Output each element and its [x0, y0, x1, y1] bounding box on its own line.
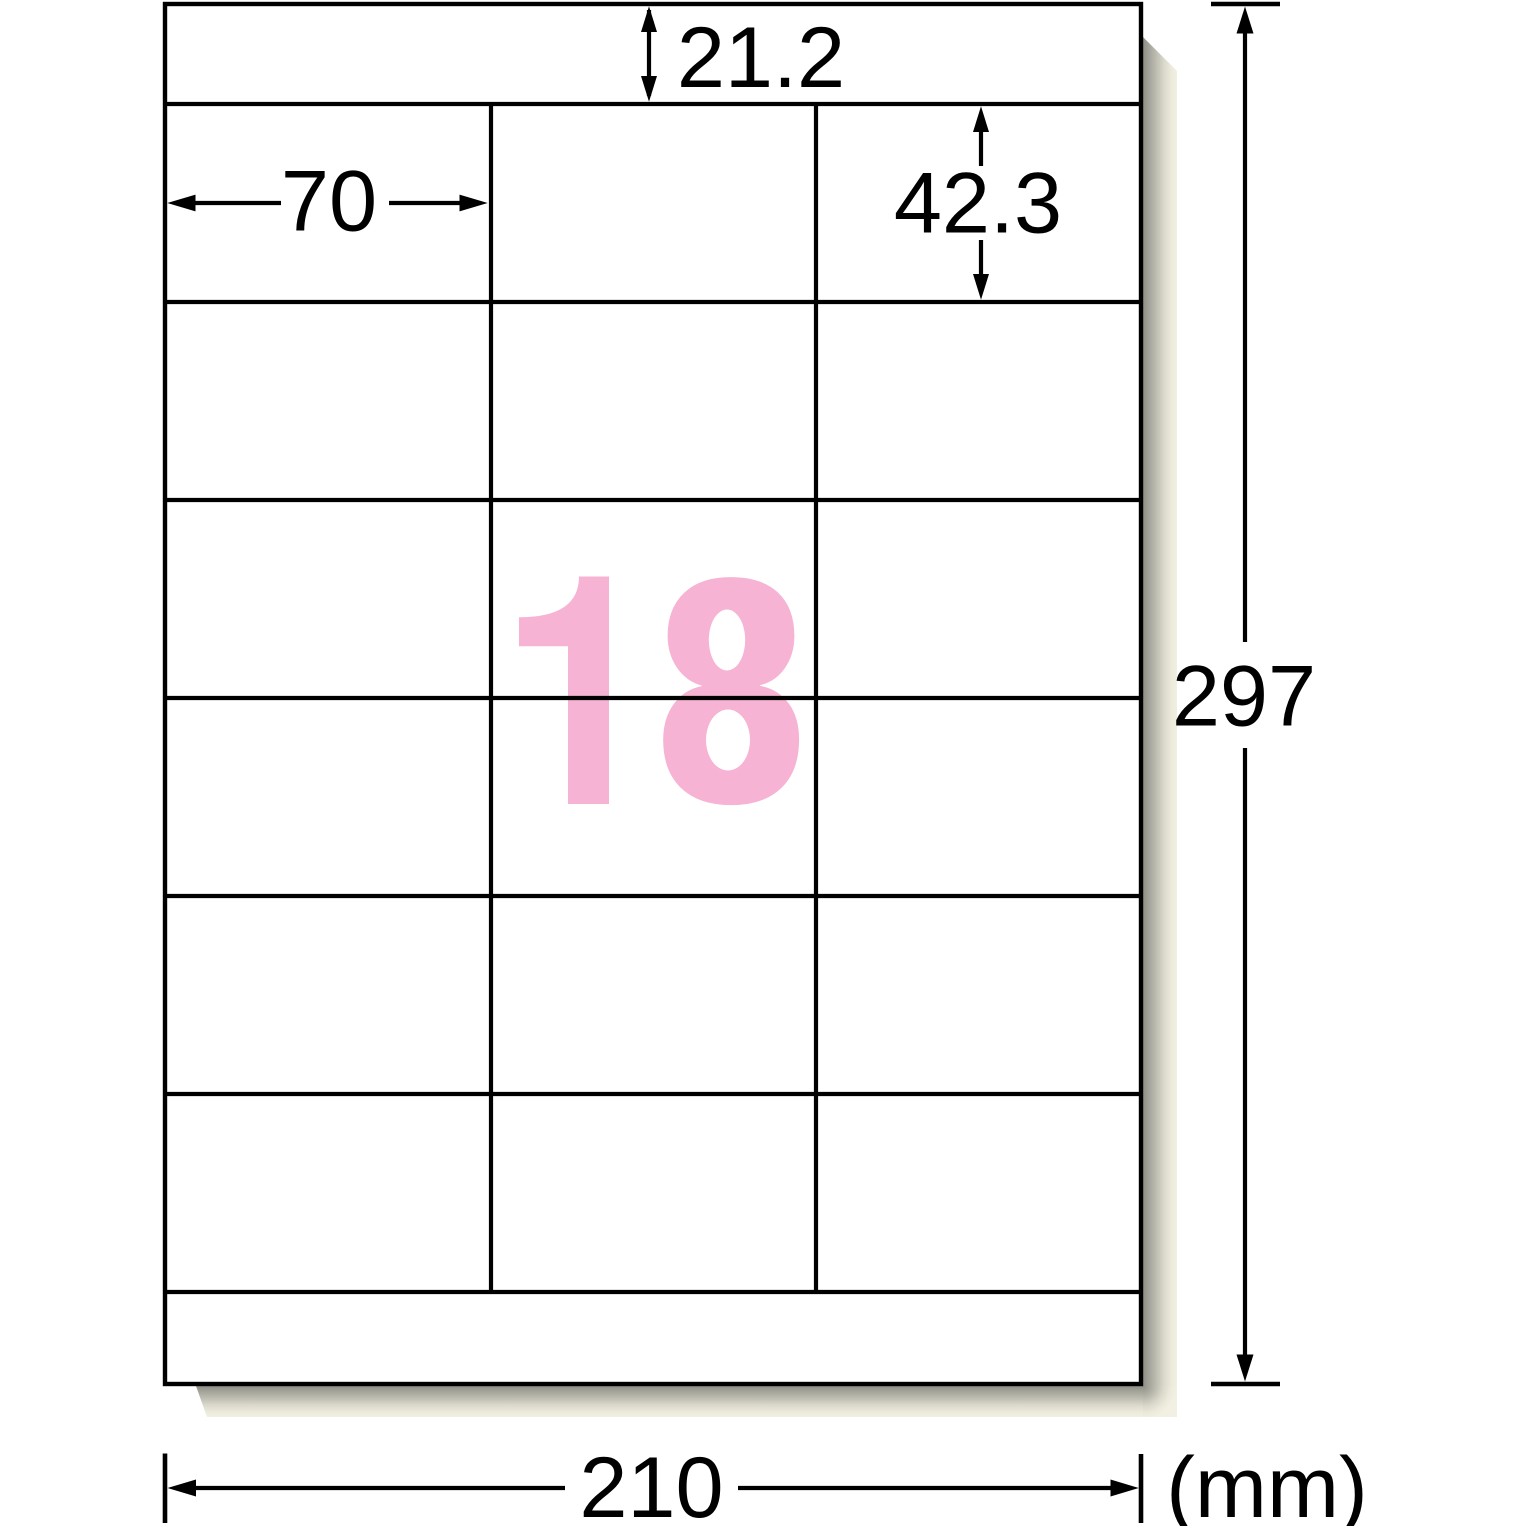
svg-text:8: 8: [654, 512, 807, 871]
svg-text:42.3: 42.3: [894, 156, 1062, 252]
svg-text:297: 297: [1172, 649, 1316, 745]
svg-text:210: 210: [579, 1440, 723, 1526]
svg-text:21.2: 21.2: [677, 10, 845, 106]
svg-text:(mm): (mm): [1166, 1440, 1368, 1526]
svg-text:70: 70: [281, 153, 377, 249]
